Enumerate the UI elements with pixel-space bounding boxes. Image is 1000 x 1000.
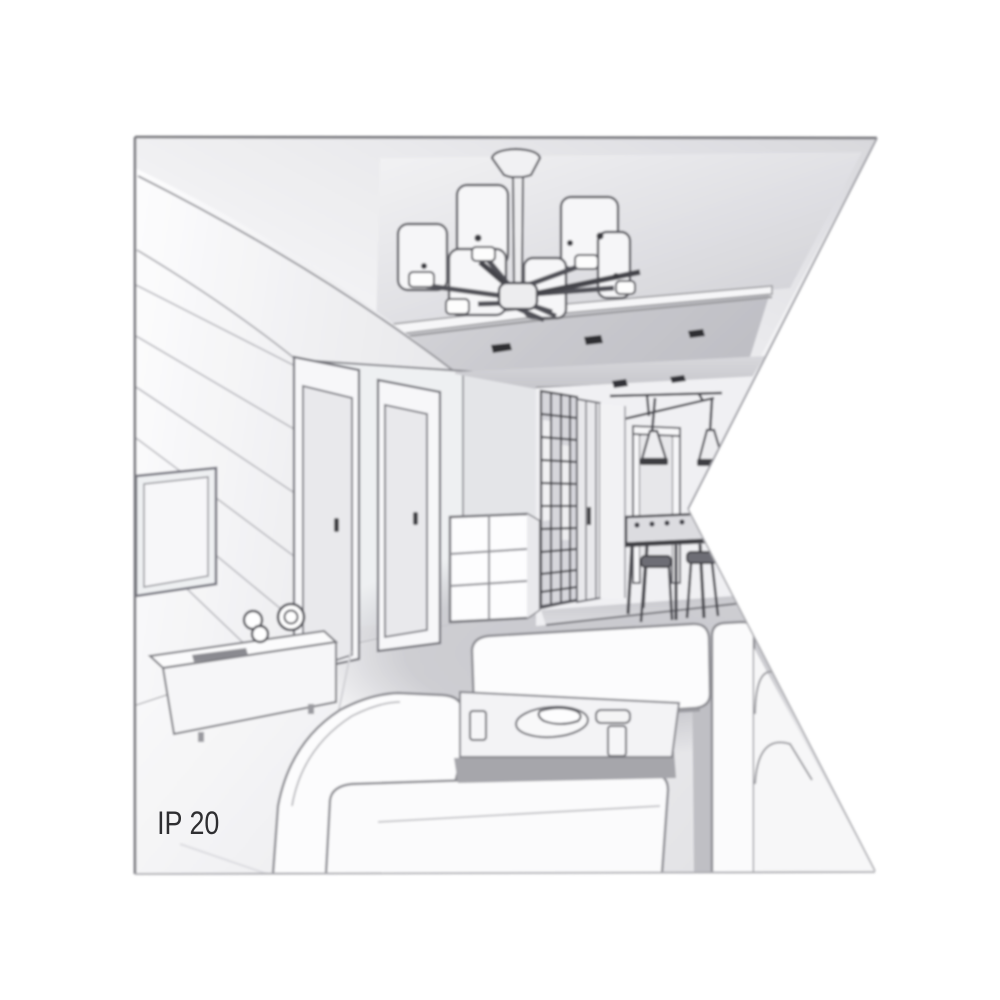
svg-text:IP 20: IP 20: [157, 806, 219, 842]
